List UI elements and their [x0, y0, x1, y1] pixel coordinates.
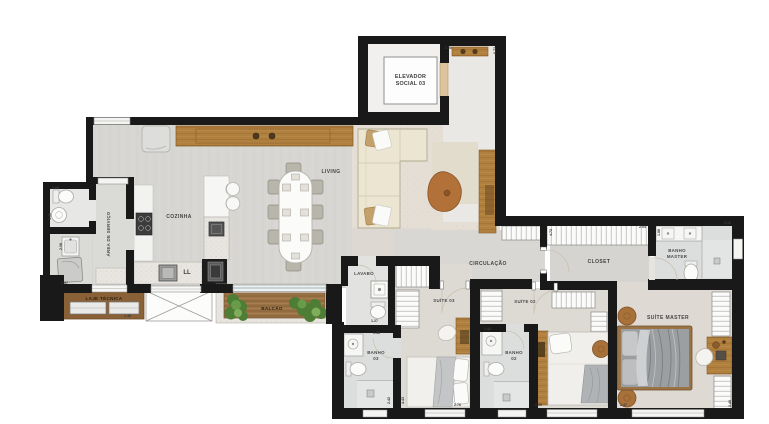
svg-text:ELEVADOR: ELEVADOR — [395, 74, 426, 80]
svg-text:1.09: 1.09 — [52, 186, 59, 190]
svg-text:BANHO: BANHO — [367, 350, 385, 355]
svg-text:COZINHA: COZINHA — [166, 214, 192, 220]
svg-text:CIRCULAÇÃO: CIRCULAÇÃO — [469, 260, 507, 267]
svg-text:1.44: 1.44 — [484, 327, 491, 331]
svg-text:1.30: 1.30 — [48, 213, 52, 220]
svg-text:BANHO: BANHO — [505, 350, 523, 355]
svg-text:3.49: 3.49 — [728, 400, 732, 407]
svg-text:LAJE TÉCNICA: LAJE TÉCNICA — [85, 294, 122, 301]
svg-text:1.88: 1.88 — [657, 229, 661, 236]
svg-text:1.97: 1.97 — [61, 281, 68, 285]
svg-text:4.72: 4.72 — [549, 229, 553, 236]
svg-text:2.04: 2.04 — [639, 225, 646, 229]
svg-text:SUÍTE 02: SUÍTE 02 — [514, 299, 536, 304]
svg-text:LL: LL — [183, 270, 191, 276]
svg-text:1.45: 1.45 — [124, 314, 131, 318]
svg-text:LIVING: LIVING — [321, 169, 340, 175]
svg-text:2.47: 2.47 — [620, 403, 627, 407]
svg-text:2.10: 2.10 — [724, 221, 731, 225]
svg-text:1.27: 1.27 — [371, 319, 378, 323]
svg-text:SOCIAL 03: SOCIAL 03 — [396, 81, 426, 87]
svg-text:LAVABO: LAVABO — [354, 271, 374, 276]
svg-text:BALCÃO: BALCÃO — [261, 305, 283, 311]
svg-text:02: 02 — [511, 356, 517, 361]
svg-text:CLOSET: CLOSET — [588, 259, 611, 265]
svg-text:ÁREA DE SERVIÇO: ÁREA DE SERVIÇO — [106, 211, 111, 256]
svg-text:2.76: 2.76 — [454, 403, 461, 407]
svg-text:2.08: 2.08 — [59, 243, 63, 250]
svg-text:SUÍTE 03: SUÍTE 03 — [433, 298, 455, 303]
svg-text:1.50: 1.50 — [445, 46, 452, 50]
svg-text:SUÍTE MASTER: SUÍTE MASTER — [647, 313, 689, 321]
svg-text:BANHO: BANHO — [668, 248, 686, 253]
svg-text:1.38: 1.38 — [373, 331, 380, 335]
svg-text:2.99: 2.99 — [535, 403, 542, 407]
svg-text:0.72: 0.72 — [493, 47, 497, 54]
svg-text:03: 03 — [373, 356, 379, 361]
svg-text:2.42: 2.42 — [387, 397, 391, 404]
svg-text:4.43: 4.43 — [401, 397, 405, 404]
svg-text:MASTER: MASTER — [667, 254, 688, 259]
